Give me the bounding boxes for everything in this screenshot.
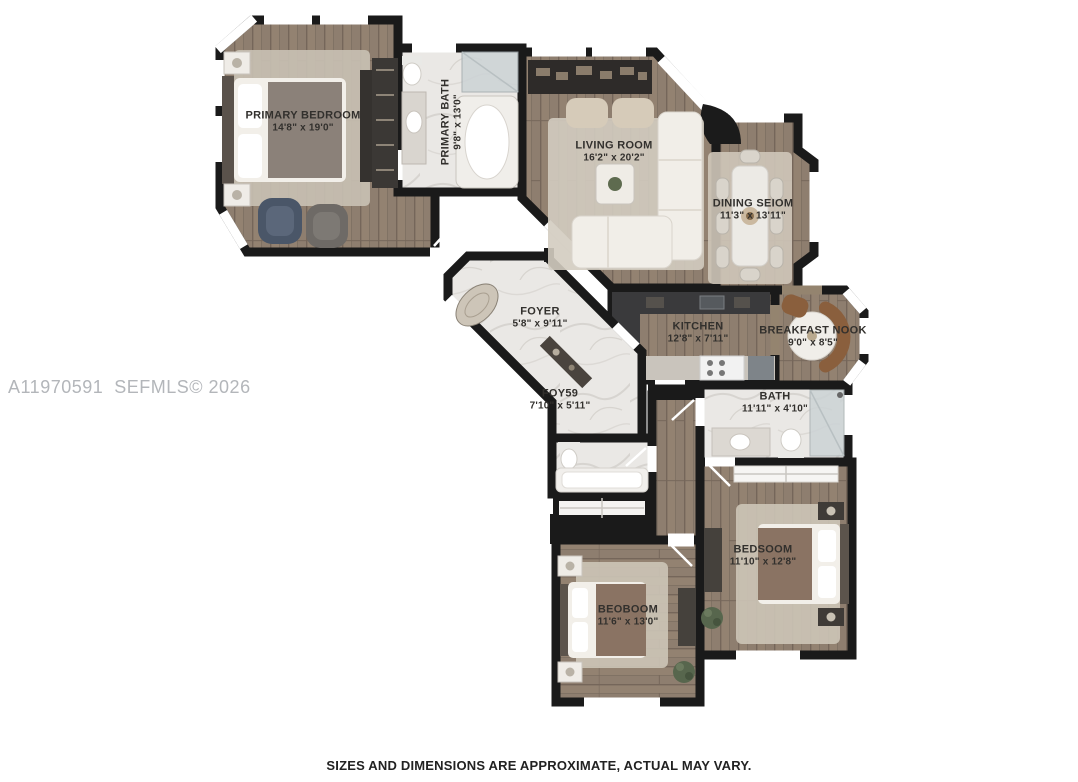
bed-headboard <box>222 76 234 184</box>
media-unit <box>528 60 652 94</box>
dining-room-furniture <box>708 150 792 284</box>
dresser <box>678 588 696 646</box>
bed-pillow <box>238 134 262 178</box>
bed-pillow <box>572 588 588 618</box>
bed-pillow <box>238 84 262 128</box>
plant <box>673 661 695 683</box>
accent-chair <box>612 98 654 128</box>
lamp <box>566 562 575 571</box>
bed-pillow <box>818 566 836 598</box>
kitchen-sink <box>700 296 724 309</box>
sink <box>730 434 750 450</box>
bed-headboard <box>560 584 569 656</box>
stove <box>700 356 744 380</box>
bed-headboard <box>840 524 849 604</box>
wardrobe-closet <box>372 58 398 188</box>
bed-blanket <box>596 584 646 656</box>
bed-pillow <box>572 622 588 652</box>
floorplan-canvas: PRIMARY BEDROOM 14'8" x 19'0" PRIMARY BA… <box>0 0 1078 782</box>
lamp <box>232 58 242 68</box>
watermark: A11970591 SEFMLS© 2026 <box>8 377 251 398</box>
bed-pillow <box>818 530 836 562</box>
lamp <box>827 613 836 622</box>
lamp <box>827 507 836 516</box>
toilet-bowl <box>561 449 577 469</box>
toilet-bowl <box>403 63 421 85</box>
fridge <box>748 356 774 380</box>
accent-chair <box>566 98 608 128</box>
dresser <box>704 528 722 592</box>
bed-blanket <box>758 528 812 600</box>
fireplace <box>701 104 741 144</box>
plant <box>608 177 622 191</box>
toilet-bowl <box>781 429 801 451</box>
sofa-bottom <box>572 216 672 268</box>
bed-blanket <box>268 82 342 178</box>
sink <box>406 111 422 133</box>
lamp <box>232 190 242 200</box>
disclaimer: SIZES AND DIMENSIONS ARE APPROXIMATE, AC… <box>0 758 1078 773</box>
closet-bath2 <box>556 498 648 518</box>
plant <box>701 607 723 629</box>
lamp <box>566 668 575 677</box>
